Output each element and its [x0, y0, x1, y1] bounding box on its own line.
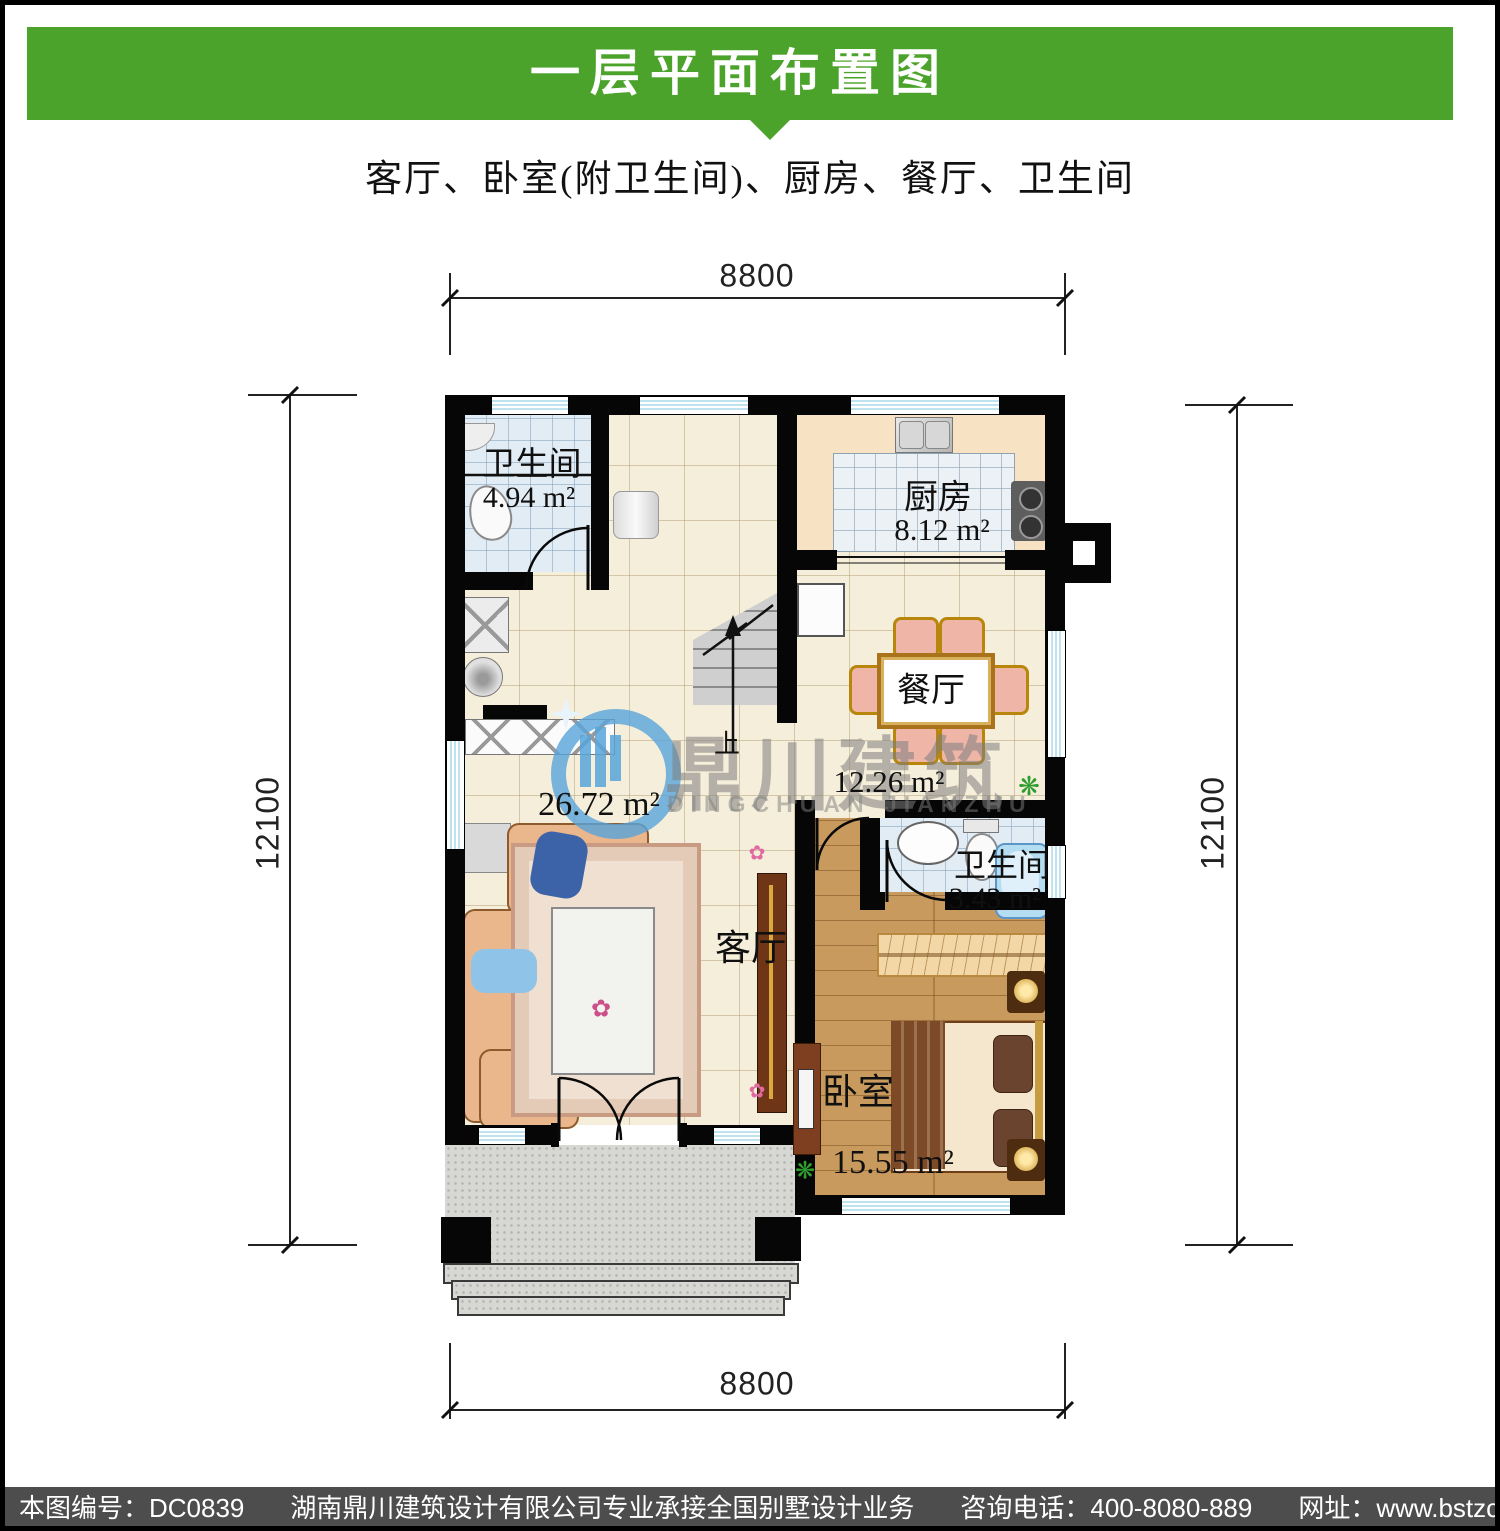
flue-hole — [1073, 541, 1095, 565]
coffee-table — [551, 907, 655, 1075]
vase-flower-bottom-icon: ✿ — [749, 1079, 766, 1104]
page-title: 一层平面布置图 — [27, 27, 1453, 120]
plant-bedroom-icon: ❋ — [795, 1157, 815, 1186]
window-kitchen — [850, 396, 1000, 415]
label-stairs-up: 上 — [714, 724, 740, 761]
dim-right: 12100 — [1195, 776, 1232, 870]
bed-pillow-1 — [993, 1035, 1033, 1093]
washing-machine — [461, 597, 509, 653]
tv-cabinet-gold-line — [769, 885, 773, 1099]
page-subtitle: 客厅、卧室(附卫生间)、厨房、餐厅、卫生间 — [5, 148, 1495, 202]
dim-left: 12100 — [250, 776, 287, 870]
window-dining-right — [1047, 630, 1066, 758]
entry-jamb-left — [551, 1123, 559, 1147]
label-bedroom-area: 15.55 m² — [832, 1144, 954, 1182]
bedroom-tv — [798, 1069, 814, 1129]
bath2-sink — [897, 821, 959, 865]
label-kitchen-area: 8.12 m² — [894, 512, 989, 548]
label-bath2-name: 卫生间 — [954, 840, 1050, 886]
label-bath2-area: 3.43 m² — [949, 882, 1041, 916]
lamp-glow-1 — [1014, 979, 1038, 1003]
wash-basin — [463, 657, 503, 697]
label-living-name: 客厅 — [715, 919, 787, 971]
wall-bath1-bottom — [445, 572, 533, 590]
label-dining-area: 12.26 m² — [834, 764, 945, 800]
hall-cabinet — [465, 719, 615, 755]
wall-dining-bedroom — [885, 800, 1065, 818]
bath2-toilet-tank — [963, 819, 999, 833]
wall-hall-stub — [483, 705, 547, 719]
porch-pillar-left — [441, 1217, 491, 1263]
window-top-1 — [491, 396, 569, 415]
label-dining-name: 餐厅 — [897, 663, 965, 712]
lamp-glow-2 — [1014, 1147, 1038, 1171]
entry-jamb-right — [679, 1123, 687, 1147]
window-living-bottom-1 — [478, 1127, 526, 1145]
wall-bath1-right — [591, 395, 609, 590]
wall-kitchen-bottom-b — [1005, 550, 1065, 570]
porch-step-3 — [457, 1296, 785, 1316]
corner-side-table — [461, 823, 511, 873]
water-heater — [613, 491, 659, 539]
label-bath1-area: 4.94 m² — [483, 481, 575, 515]
footer-plan-number: 本图编号：DC0839 — [19, 1488, 244, 1525]
plant-dining-icon: ❋ — [1018, 772, 1040, 802]
footer-phone: 咨询电话：400-8080-889 — [960, 1488, 1252, 1525]
footer-company: 湖南鼎川建筑设计有限公司专业承接全国别墅设计业务 — [290, 1488, 914, 1525]
label-bath1-name: 卫生间 — [483, 437, 582, 485]
footer-bar: 本图编号：DC0839 湖南鼎川建筑设计有限公司专业承接全国别墅设计业务 咨询电… — [5, 1487, 1500, 1526]
dim-bottom: 8800 — [719, 1366, 794, 1403]
vase-flower-top-icon: ✿ — [749, 841, 766, 866]
window-top-2 — [639, 396, 749, 415]
window-living-bottom-2 — [713, 1127, 761, 1145]
window-left-living — [446, 740, 465, 850]
banner-notch — [750, 120, 790, 140]
porch — [445, 1145, 795, 1263]
stove-burner-1 — [1019, 487, 1043, 511]
kitchen-sink-bowl-1 — [899, 421, 924, 449]
dining-chair-5 — [893, 723, 939, 765]
label-bedroom-name: 卧室 — [822, 1063, 894, 1115]
wall-bath2-bottom-a — [860, 892, 885, 910]
footer-website: 网址：www.bstzcs.com — [1298, 1488, 1500, 1525]
stove-burner-2 — [1019, 515, 1043, 539]
porch-pillar-right — [755, 1217, 801, 1261]
label-living-area: 26.72 m² — [538, 786, 660, 824]
dining-chair-6 — [939, 723, 985, 765]
kitchen-sink-bowl-2 — [925, 421, 950, 449]
dim-top: 8800 — [719, 258, 794, 295]
wall-kitchen-bottom-a — [777, 550, 837, 570]
person-lying — [471, 949, 537, 993]
fridge — [797, 583, 845, 637]
table-flower-icon: ✿ — [591, 995, 611, 1024]
floor-plan-page: 一层平面布置图 客厅、卧室(附卫生间)、厨房、餐厅、卫生间 — [0, 0, 1500, 1531]
window-bedroom-bottom — [841, 1197, 1011, 1215]
